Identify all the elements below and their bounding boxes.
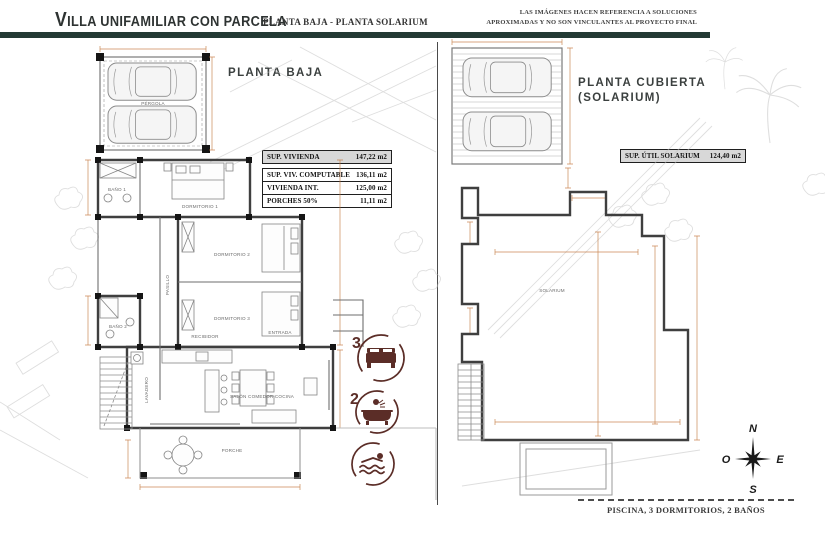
room-label-pasillo: PASILLO: [165, 275, 170, 295]
pool-feature: [344, 435, 402, 493]
toilet: [104, 194, 112, 202]
compass-east-label: E: [776, 454, 784, 466]
footer-summary: PISCINA, 3 DORMITORIOS, 2 BAÑOS: [570, 505, 802, 515]
compass-west-label: O: [722, 454, 731, 466]
roof-extension: [520, 443, 612, 495]
sink: [123, 194, 131, 202]
compass-rose: N E S O: [722, 423, 785, 496]
compass-north-label: N: [749, 423, 758, 435]
bed-icon: [366, 348, 396, 368]
room-label-entrada: ENTRADA: [268, 330, 292, 335]
icon-ring: [344, 435, 402, 493]
car-icon: [108, 106, 196, 143]
stairs: [458, 364, 484, 440]
car-icon: [463, 112, 551, 151]
bathrooms-feature: 2: [348, 383, 406, 441]
room-label-recibidor: RECIBIDOR: [191, 334, 219, 339]
footer-dashed-line: [578, 499, 794, 501]
compass-south-label: S: [749, 484, 757, 496]
car-icon: [108, 63, 196, 100]
room-label-pergola: PÉRGOLA: [141, 100, 165, 106]
room-label-bano2: BAÑO 2: [109, 323, 127, 329]
compass-star: [735, 437, 771, 479]
sofa: [252, 410, 296, 423]
furniture: [100, 163, 317, 423]
room-label-dormitorio3: DORMITORIO 3: [214, 316, 250, 321]
room-label-dormitorio2: DORMITORIO 2: [214, 252, 250, 257]
bathtub-icon: [361, 399, 393, 425]
armchair: [304, 378, 317, 395]
porch-table: [172, 444, 194, 466]
floor-plan-solarium: SOLARIUM: [452, 39, 700, 495]
plans-canvas: PÉRGOLA: [0, 0, 825, 540]
room-label-bano1: BAÑO 1: [108, 186, 126, 192]
dining-table: [240, 370, 266, 406]
pergola-left: PÉRGOLA: [96, 53, 210, 153]
pergola-right: [452, 48, 562, 164]
car-icon: [463, 58, 551, 97]
room-label-salon: SALÓN COMEDOR COCINA: [230, 393, 295, 399]
room-label-dormitorio1: DORMITORIO 1: [182, 204, 218, 209]
feature-icons: 3 2: [344, 326, 413, 493]
room-label-lavadero: LAVADERO: [144, 377, 149, 403]
kitchen-island: [205, 370, 219, 412]
swimmer-icon: [360, 453, 384, 474]
solarium-walls: [462, 188, 688, 440]
porch: [140, 428, 300, 478]
room-label-porche: PORCHE: [222, 448, 243, 453]
room-label-solarium: SOLARIUM: [539, 288, 565, 293]
palm-tree-sketch: [706, 48, 743, 90]
palm-tree-sketch: [736, 69, 801, 143]
bedrooms-feature: 3: [349, 326, 413, 390]
brochure-page: Villa unifamiliar con parcela PLANTA BAJ…: [0, 0, 825, 540]
